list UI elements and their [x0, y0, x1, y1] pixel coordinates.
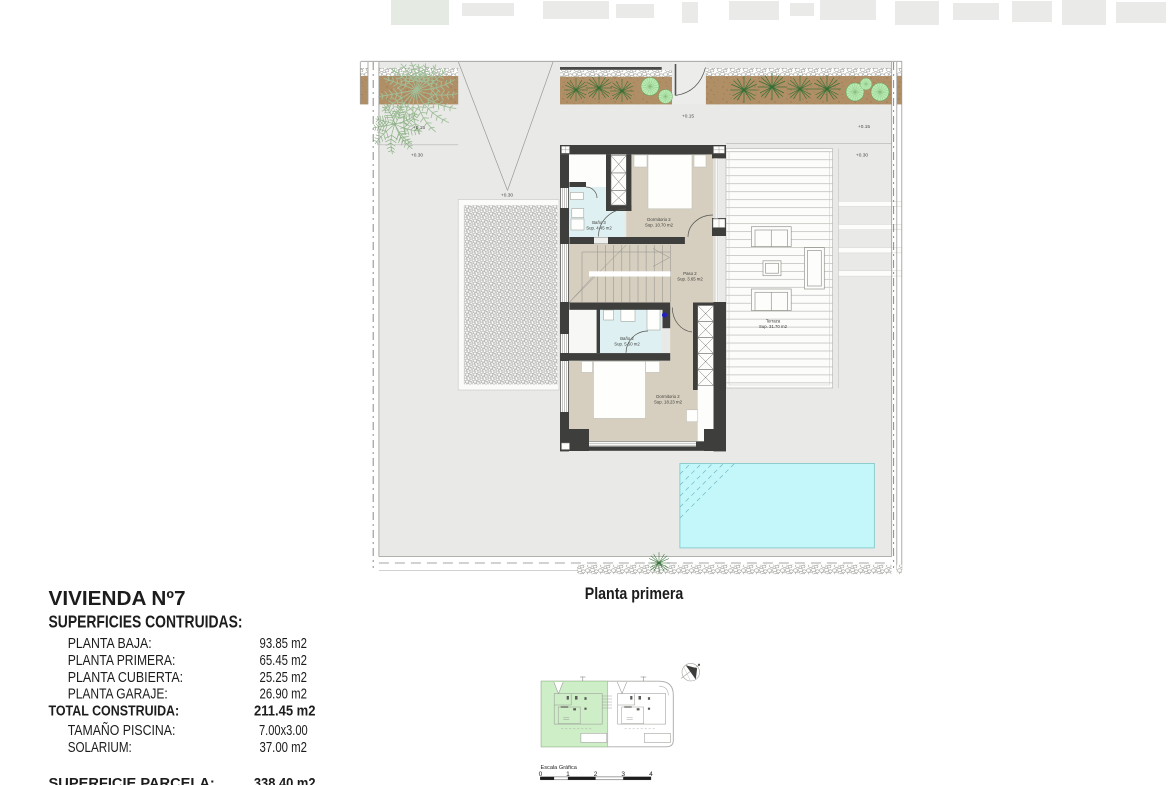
svg-text:Sup. 4.45 m2: Sup. 4.45 m2 — [586, 226, 612, 231]
svg-text:TOTAL CONSTRUIDA:: TOTAL CONSTRUIDA: — [49, 704, 180, 720]
svg-text:25.25 m2: 25.25 m2 — [260, 670, 308, 686]
svg-text:Escala Gráfica: Escala Gráfica — [541, 765, 578, 771]
svg-text:SOLARIUM:: SOLARIUM: — [68, 740, 132, 756]
svg-text:Sup. 18.23 m2: Sup. 18.23 m2 — [654, 400, 683, 405]
svg-text:SUPERFICIES CONTRUIDAS:: SUPERFICIES CONTRUIDAS: — [49, 611, 243, 631]
svg-text:7.00x3.00: 7.00x3.00 — [259, 723, 308, 739]
svg-text:Terraza: Terraza — [766, 318, 781, 323]
svg-text:+0.15: +0.15 — [413, 125, 425, 131]
svg-text:Baño 2: Baño 2 — [620, 336, 634, 341]
svg-text:PLANTA PRIMERA:: PLANTA PRIMERA: — [68, 653, 176, 669]
svg-text:Sup. 31.70 m2: Sup. 31.70 m2 — [759, 324, 788, 329]
svg-text:Planta primera: Planta primera — [585, 584, 684, 603]
svg-text:338.40 m2: 338.40 m2 — [254, 776, 316, 785]
svg-text:+0.30: +0.30 — [501, 193, 513, 199]
svg-text:Paso 2: Paso 2 — [683, 271, 697, 276]
svg-text:+0.30: +0.30 — [411, 153, 423, 159]
svg-text:211.45 m2: 211.45 m2 — [254, 704, 316, 720]
svg-text:Baño 3: Baño 3 — [592, 220, 606, 225]
svg-text:+0.15: +0.15 — [858, 124, 870, 130]
svg-text:Dormitorio 2: Dormitorio 2 — [656, 394, 680, 399]
svg-text:Sup. 10.70 m2: Sup. 10.70 m2 — [645, 223, 674, 228]
svg-text:PLANTA BAJA:: PLANTA BAJA: — [68, 636, 152, 652]
svg-text:PLANTA CUBIERTA:: PLANTA CUBIERTA: — [68, 670, 183, 686]
svg-text:SUPERFICIE PARCELA:: SUPERFICIE PARCELA: — [49, 776, 215, 785]
svg-text:37.00 m2: 37.00 m2 — [260, 740, 308, 756]
svg-text:TAMAÑO PISCINA:: TAMAÑO PISCINA: — [68, 722, 176, 739]
svg-text:VIVIENDA Nº7: VIVIENDA Nº7 — [49, 587, 186, 610]
svg-text:PLANTA GARAJE:: PLANTA GARAJE: — [68, 687, 168, 703]
svg-text:Dormitorio 2: Dormitorio 2 — [647, 217, 671, 222]
svg-text:+0.30: +0.30 — [856, 153, 868, 159]
svg-text:65.45 m2: 65.45 m2 — [260, 653, 308, 669]
svg-text:Sup. 5.50 m2: Sup. 5.50 m2 — [614, 342, 640, 347]
svg-text:26.90 m2: 26.90 m2 — [260, 687, 308, 703]
svg-text:+0.15: +0.15 — [682, 114, 694, 120]
svg-text:Sup. 3.65 m2: Sup. 3.65 m2 — [677, 277, 703, 282]
svg-text:93.85 m2: 93.85 m2 — [260, 636, 308, 652]
